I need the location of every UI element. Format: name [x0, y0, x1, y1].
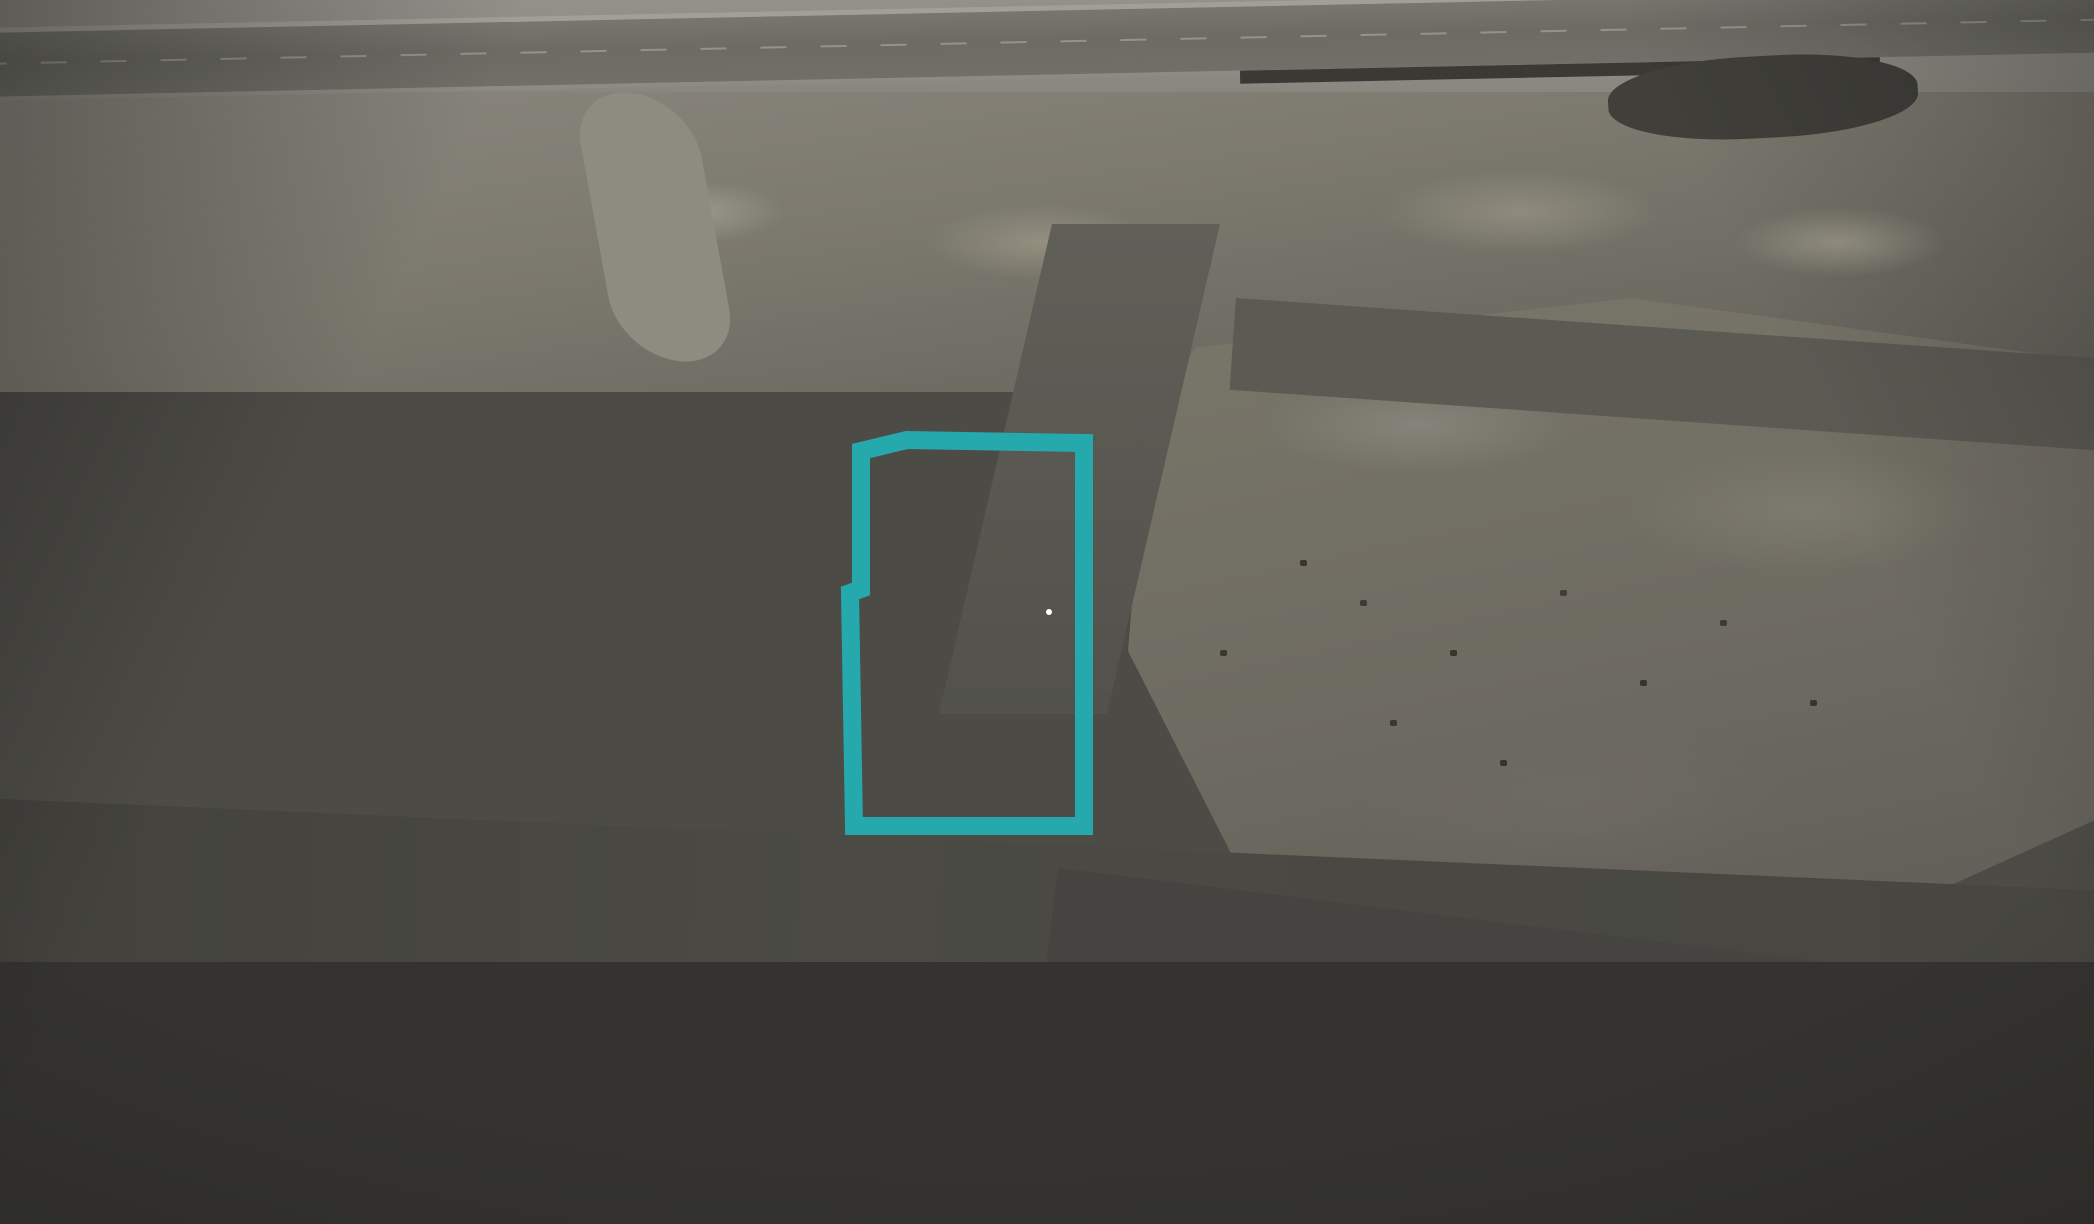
aerial-photo — [0, 0, 2094, 1224]
map-pin-icon — [1037, 601, 1060, 624]
watermark-pill — [963, 596, 1129, 628]
dirt-lot-debris — [1300, 560, 1307, 566]
street-shadow-base — [0, 962, 2094, 1224]
